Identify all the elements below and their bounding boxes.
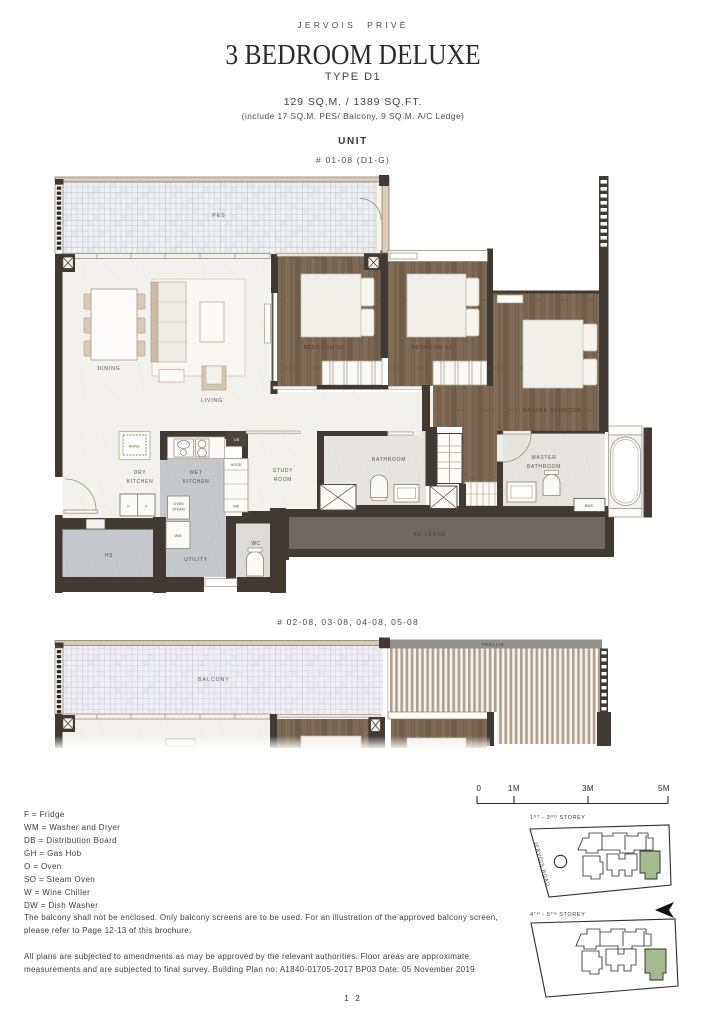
svg-text:AC LEDGE: AC LEDGE [413,532,446,538]
svg-text:WM: WM [175,534,182,538]
svg-text:5M: 5M [658,784,670,793]
svg-text:BATHROOM: BATHROOM [527,464,561,470]
svg-text:DB: DB [234,437,240,442]
svg-text:TRELLIS: TRELLIS [482,642,505,647]
svg-text:LIVING: LIVING [201,398,223,404]
svg-text:WINE: WINE [129,445,141,449]
svg-text:DRY: DRY [134,470,147,476]
svg-text:WET: WET [189,470,202,476]
svg-text:UTILITY: UTILITY [184,557,208,563]
svg-text:STEAM: STEAM [172,508,184,512]
svg-text:PES: PES [212,213,225,219]
svg-text:MASTER: MASTER [531,455,556,461]
svg-text:HOOD: HOOD [231,463,242,467]
svg-text:BEDROOM 02: BEDROOM 02 [412,345,453,351]
svg-text:DW: DW [233,505,240,509]
svg-text:WC: WC [251,541,260,547]
svg-text:KITCHEN: KITCHEN [127,479,154,485]
svg-text:BEDROOM 03: BEDROOM 03 [304,345,345,351]
svg-text:BATHROOM: BATHROOM [372,457,406,463]
svg-text:HS: HS [105,553,113,559]
svg-text:STUDY: STUDY [273,468,293,474]
svg-text:MASTER BEDROOM: MASTER BEDROOM [522,408,581,414]
svg-text:OVEN: OVEN [173,502,184,506]
svg-text:DINING: DINING [98,366,121,372]
svg-text:KITCHEN: KITCHEN [183,479,210,485]
svg-text:HWC: HWC [585,504,594,508]
svg-text:BALCONY: BALCONY [198,677,230,683]
svg-text:1M: 1M [508,784,520,793]
svg-text:0: 0 [477,784,482,793]
svg-text:4TH - 5TH STOREY: 4TH - 5TH STOREY [530,911,585,919]
svg-text:3M: 3M [582,784,594,793]
svg-text:ROOM: ROOM [274,477,292,483]
svg-text:1ST - 3RD STOREY: 1ST - 3RD STOREY [530,814,586,822]
